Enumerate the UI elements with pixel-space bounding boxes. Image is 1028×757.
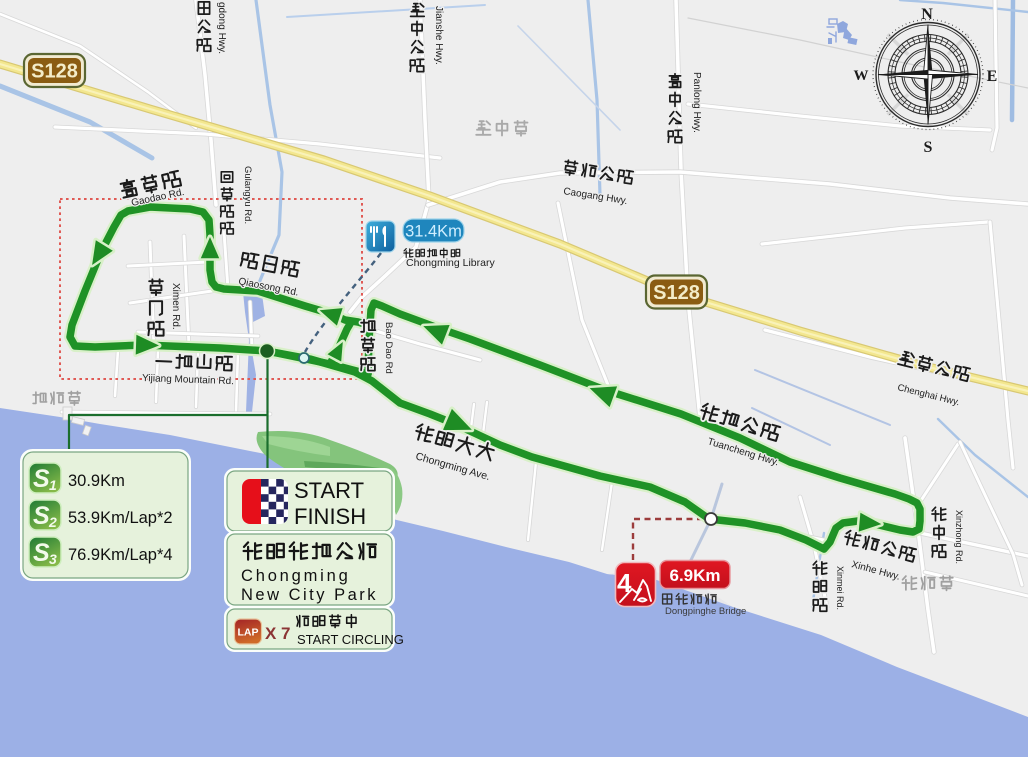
- svg-text:76.9Km/Lap*4: 76.9Km/Lap*4: [68, 546, 173, 564]
- svg-text:3: 3: [49, 551, 57, 567]
- svg-text:1: 1: [49, 477, 57, 493]
- svg-text:31.4Km: 31.4Km: [405, 223, 462, 241]
- svg-text:4: 4: [617, 568, 632, 598]
- svg-text:S128: S128: [653, 282, 700, 304]
- svg-text:Panlong Hwy.: Panlong Hwy.: [691, 72, 702, 133]
- svg-text:START CIRCLING: START CIRCLING: [297, 632, 404, 647]
- svg-text:6.9Km: 6.9Km: [669, 566, 720, 585]
- svg-text:Chongming: Chongming: [241, 567, 351, 585]
- svg-text:S: S: [33, 539, 50, 567]
- svg-text:FINISH: FINISH: [294, 504, 366, 529]
- svg-text:53.9Km/Lap*2: 53.9Km/Lap*2: [68, 509, 173, 527]
- svg-text:W: W: [854, 68, 869, 84]
- svg-text:Gulangyu Rd.: Gulangyu Rd.: [242, 166, 253, 224]
- svg-text:New City Park: New City Park: [241, 586, 378, 604]
- svg-text:N: N: [921, 6, 933, 23]
- svg-text:Chongming Library: Chongming Library: [406, 257, 495, 269]
- svg-text:30.9Km: 30.9Km: [68, 472, 125, 490]
- svg-text:Dongpinghe Bridge: Dongpinghe Bridge: [665, 606, 746, 617]
- svg-text:S128: S128: [31, 61, 78, 83]
- svg-text:LAP: LAP: [238, 627, 259, 639]
- svg-text:Bao Dao Rd: Bao Dao Rd: [383, 322, 394, 374]
- svg-text:Ximen Rd.: Ximen Rd.: [170, 283, 181, 330]
- svg-text:START: START: [294, 478, 364, 503]
- svg-text:X 7: X 7: [265, 624, 291, 643]
- svg-text:2: 2: [48, 514, 57, 530]
- svg-text:S: S: [33, 502, 50, 530]
- svg-text:S: S: [33, 465, 50, 493]
- svg-text:Xinzhong Rd.: Xinzhong Rd.: [954, 510, 964, 564]
- svg-text:E: E: [987, 68, 998, 85]
- svg-text:Xinmei Rd.: Xinmei Rd.: [835, 566, 845, 610]
- svg-text:Jianshe Hwy.: Jianshe Hwy.: [433, 6, 444, 65]
- svg-text:gdong Hwy.: gdong Hwy.: [216, 2, 227, 54]
- svg-text:S: S: [924, 139, 933, 156]
